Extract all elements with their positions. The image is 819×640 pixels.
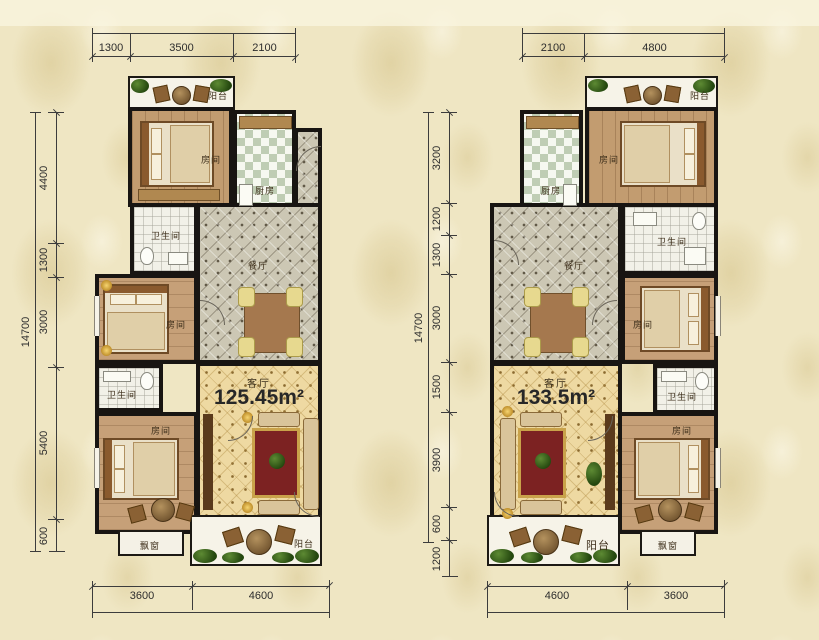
bay-window-label: 飘窗: [658, 539, 678, 552]
dim-segment: 3500: [130, 35, 233, 57]
right-bedroom-middle: 房间: [621, 274, 718, 364]
bed-headboard: [701, 288, 708, 350]
chair: [684, 502, 704, 522]
dim-tick: [49, 551, 65, 552]
dining-chair: [286, 337, 303, 357]
wallpaper-highlight-band: [0, 0, 819, 26]
left-top-dims: 1300 3500 2100: [92, 35, 296, 57]
balcony-chair: [274, 525, 295, 545]
balcony-label: 阳台: [294, 537, 314, 550]
bed-quilt: [107, 312, 165, 350]
lamp: [101, 345, 112, 356]
left-dining: 餐厅: [196, 203, 322, 364]
bed-pillow: [110, 294, 136, 305]
plant-decor: [295, 549, 319, 563]
dim-segment: 1200: [432, 540, 450, 577]
kitchen-sink: [239, 184, 253, 206]
dim-tick: [442, 576, 458, 577]
left-bathroom-bottom: 卫生间: [95, 364, 163, 412]
dim-segment: 1300: [92, 35, 130, 57]
left-bay-window: 飘窗: [118, 530, 184, 556]
bed-pillow: [688, 293, 699, 317]
balcony-chair: [222, 527, 244, 548]
side-table: [151, 498, 175, 522]
dim-tick: [724, 580, 725, 609]
dim-segment: 600: [39, 519, 57, 552]
plant-decor: [588, 79, 608, 92]
dining-chair: [238, 337, 255, 357]
bed-headboard: [142, 123, 149, 185]
bed: [103, 438, 179, 500]
bathroom-label: 卫生间: [151, 229, 181, 242]
toilet: [140, 372, 154, 390]
balcony-label: 阳台: [690, 89, 710, 102]
dim-segment: 3600: [92, 586, 192, 608]
right-balcony-bottom: 阳台: [487, 515, 620, 566]
dim-segment: 1300: [39, 243, 57, 277]
left-side-total-line: 14700: [35, 112, 36, 552]
bed: [634, 438, 710, 500]
balcony-chair: [624, 85, 642, 104]
right-side-total-line: 14700: [428, 112, 429, 543]
left-top-total-line: [92, 33, 296, 34]
living-rug: [252, 428, 300, 498]
balcony-table: [246, 529, 272, 555]
left-bedroom-middle: 房间: [95, 274, 198, 364]
dim-segment: 4800: [584, 35, 725, 57]
left-balcony-bottom: 阳台: [190, 515, 322, 566]
right-bay-window: 飘窗: [640, 530, 696, 556]
left-bottom-dims: 3600 4600: [92, 586, 330, 608]
plant-decor: [193, 549, 217, 563]
dim-segment: 4400: [39, 112, 57, 243]
balcony-label: 阳台: [586, 537, 610, 553]
right-bottom-total-line: [487, 612, 725, 613]
right-balcony-top: 阳台: [585, 76, 718, 111]
bedroom-label: 房间: [201, 153, 221, 166]
dim-total-value: 14700: [413, 312, 425, 343]
balcony-table: [643, 86, 662, 105]
bed-headboard: [701, 440, 708, 498]
right-bedroom-top: 房间: [585, 107, 718, 207]
dining-chair: [286, 287, 303, 307]
sofa-small: [520, 412, 562, 427]
right-bottom-dims: 4600 3600: [487, 586, 725, 608]
floorplan-canvas: 阳台 房间 厨房 卫生间 餐厅: [0, 0, 819, 640]
side-table: [658, 498, 682, 522]
chair: [127, 504, 147, 524]
bed-pillow: [684, 154, 695, 180]
bedroom-label: 房间: [166, 318, 186, 331]
bathroom-label: 卫生间: [107, 388, 137, 401]
dim-segment: 2100: [522, 35, 584, 57]
dim-tick: [295, 34, 296, 63]
balcony-label: 阳台: [208, 89, 228, 102]
right-side-dims: 3200 1200 1300 3000 1500 3900 600 1200: [432, 112, 450, 577]
bed-quilt: [624, 125, 670, 183]
left-balcony-top: 阳台: [128, 76, 235, 111]
bathroom-sink: [103, 371, 131, 382]
toilet: [695, 372, 709, 390]
bed: [620, 121, 706, 187]
bed-headboard: [105, 286, 167, 293]
plant-decor: [586, 462, 602, 486]
dining-chair: [524, 337, 541, 357]
left-bathroom-top: 卫生间: [130, 203, 198, 275]
kitchen-label: 厨房: [541, 184, 561, 197]
bed-pillow: [114, 445, 125, 469]
plant-decor: [269, 453, 285, 469]
bathroom-label: 卫生间: [667, 390, 697, 403]
left-bedroom-bottom: 房间: [95, 412, 198, 534]
plant-decor: [131, 79, 149, 93]
left-bottom-total-line: [92, 612, 330, 613]
right-bathroom-bottom: 卫生间: [653, 364, 718, 414]
bed-pillow: [688, 321, 699, 345]
balcony-table: [172, 86, 191, 105]
right-bathroom-top: 卫生间: [621, 203, 718, 275]
window: [94, 448, 100, 488]
living-rug: [518, 428, 566, 498]
window: [94, 296, 100, 336]
dim-segment: 3000: [432, 274, 450, 362]
bathroom-sink: [633, 212, 657, 226]
sofa-small: [258, 500, 300, 515]
window: [715, 296, 721, 336]
dining-chair: [524, 287, 541, 307]
bedroom-label: 房间: [151, 424, 171, 437]
bed-pillow: [151, 128, 162, 154]
plant-decor: [490, 549, 514, 563]
dim-segment: 4600: [487, 586, 627, 608]
bathroom-sink: [168, 252, 188, 265]
right-dining: 餐厅: [490, 203, 622, 364]
right-bedroom-bottom: 房间: [618, 412, 718, 534]
bedroom-label: 房间: [672, 424, 692, 437]
balcony-table: [533, 529, 559, 555]
dim-segment: 1300: [432, 235, 450, 274]
sofa-small: [258, 412, 300, 427]
dining-chair: [572, 287, 589, 307]
plant-decor: [222, 552, 244, 563]
dim-total-value: 14700: [20, 317, 32, 348]
bed-quilt: [638, 442, 680, 496]
dim-segment: 3900: [432, 412, 450, 507]
toilet: [140, 247, 154, 265]
sofa-small: [520, 500, 562, 515]
bathroom-label: 卫生间: [657, 235, 687, 248]
kitchen-counter: [239, 116, 292, 129]
dim-tick: [724, 34, 725, 63]
dining-label: 餐厅: [564, 259, 584, 272]
bed-quilt: [133, 442, 175, 496]
bathroom-sink: [661, 371, 687, 382]
dim-segment: 5400: [39, 367, 57, 519]
kitchen-counter: [526, 116, 579, 129]
shower: [684, 247, 706, 265]
balcony-chair: [664, 85, 682, 103]
bed: [103, 284, 169, 354]
tv-cabinet: [203, 414, 213, 510]
bedroom-label: 房间: [599, 153, 619, 166]
bed-headboard: [697, 123, 704, 185]
window: [715, 448, 721, 488]
dim-segment: 3600: [627, 586, 725, 608]
left-side-dims: 4400 1300 3000 5400 600: [39, 112, 57, 552]
balcony-chair: [561, 525, 582, 545]
bay-window-label: 飘窗: [140, 539, 160, 552]
dim-segment: 4600: [192, 586, 330, 608]
bed-pillow: [136, 294, 162, 305]
plant-decor: [535, 453, 551, 469]
left-bedroom-top: 房间: [128, 107, 233, 207]
right-top-total-line: [522, 33, 725, 34]
dim-segment: 1500: [432, 362, 450, 412]
dining-chair: [572, 337, 589, 357]
kitchen-sink: [563, 184, 577, 206]
bed-headboard: [105, 440, 112, 498]
dim-segment: 2100: [233, 35, 296, 57]
wardrobe: [138, 189, 220, 201]
bed-pillow: [688, 469, 699, 493]
dim-segment: 3000: [39, 277, 57, 367]
dining-label: 餐厅: [248, 259, 268, 272]
chair: [634, 504, 654, 524]
lamp: [242, 502, 253, 513]
balcony-chair: [153, 85, 171, 104]
bed-pillow: [688, 445, 699, 469]
bed-pillow: [114, 469, 125, 493]
bed-pillow: [684, 128, 695, 154]
plant-decor: [570, 552, 592, 563]
plant-decor: [272, 552, 294, 563]
dim-segment: 600: [432, 507, 450, 540]
dim-segment: 1200: [432, 203, 450, 235]
bed-pillow: [151, 154, 162, 180]
toilet: [692, 212, 706, 230]
living-area-value: 133.5m²: [494, 386, 618, 410]
dining-chair: [238, 287, 255, 307]
bedroom-label: 房间: [633, 318, 653, 331]
living-area-value: 125.45m²: [200, 386, 318, 410]
right-top-dims: 2100 4800: [522, 35, 725, 57]
balcony-chair: [509, 527, 531, 548]
kitchen-label: 厨房: [255, 184, 275, 197]
dim-segment: 3200: [432, 112, 450, 203]
dim-tick: [329, 580, 330, 609]
lamp: [101, 280, 112, 291]
